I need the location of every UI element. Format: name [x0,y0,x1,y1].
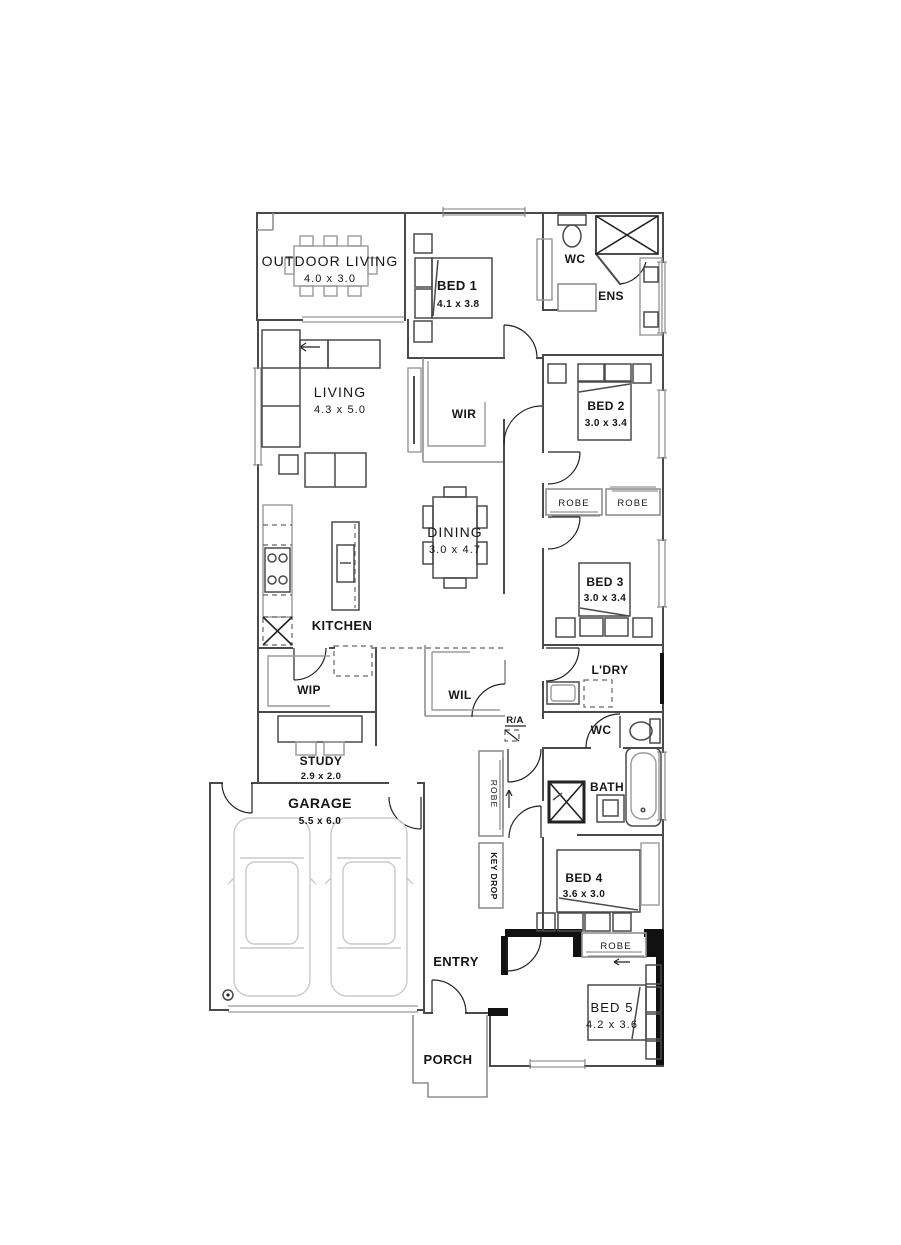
dims-bed2: 3.0 x 3.4 [585,418,628,429]
garage-rear-door [222,783,252,813]
dims-bed5: 4.2 x 3.6 [586,1019,638,1031]
wil-door [472,684,505,717]
bed4-wardrobe [641,843,659,905]
bedside-table [537,913,555,931]
return-air-symbol [505,726,526,741]
dims-bed1: 4.1 x 3.8 [437,299,480,310]
furniture-wir [428,361,485,446]
sofa-chaise [328,340,380,368]
label-bed4: BED 4 [565,871,602,885]
bedside-table [633,618,652,637]
label-bed3-robe: ROBE [617,498,648,509]
fixtures-wc [630,719,660,743]
laundry-door [546,648,579,681]
pillow [605,618,628,636]
basin [603,800,618,816]
bath-vanity [597,795,624,822]
label-wc: WC [591,723,612,737]
label-return-air: R/A [506,715,524,726]
label-bed5-robe: ROBE [600,941,631,952]
label-study: STUDY [300,754,343,768]
label-ens-wc: WC [565,252,586,266]
fixtures-laundry [547,680,612,707]
bed1-wardrobe [537,239,552,300]
kitchen-bench [263,505,292,617]
bedside-table [556,618,575,637]
toilet-bowl [563,225,581,247]
dims-living: 4.3 x 5.0 [314,404,366,416]
side-table [279,455,298,474]
bedside-table [613,913,631,931]
wip-shelves [268,656,330,706]
fridge-space [334,646,372,676]
bed3-door [548,517,580,549]
floor-plan-canvas: OUTDOOR LIVING 4.0 x 3.0 BED 1 4.1 x 3.8… [0,0,901,1245]
label-garage: GARAGE [288,795,352,811]
label-bed3: BED 3 [586,575,623,589]
wip-door [294,648,326,680]
ens-cabinet [558,284,596,311]
basin [644,267,658,282]
fixtures-ensuite [558,215,662,335]
label-wil: WIL [448,688,471,702]
label-dining: DINING [427,524,483,540]
label-bath: BATH [590,780,624,794]
hall-corridor-door [508,749,541,782]
dims-bed3: 3.0 x 3.4 [584,593,627,604]
bedside-table [414,234,432,253]
solid-walls [488,929,664,1065]
study-desk [278,716,362,742]
pillow [578,364,604,381]
label-entry: ENTRY [433,954,479,969]
dims-study: 2.9 x 2.0 [301,771,342,782]
pillow [415,289,432,318]
label-kitchen: KITCHEN [312,618,373,633]
car [228,818,316,996]
car [325,818,413,996]
dims-dining: 3.0 x 4.7 [429,544,481,556]
room-labels: OUTDOOR LIVING 4.0 x 3.0 BED 1 4.1 x 3.8… [262,252,649,1067]
floor-plan-drawing: OUTDOOR LIVING 4.0 x 3.0 BED 1 4.1 x 3.8… [0,0,901,1245]
toilet-bowl [630,722,652,740]
label-outdoor-living: OUTDOOR LIVING [262,253,399,269]
label-bed5: BED 5 [590,1000,633,1015]
bedroom-hall-door [504,406,542,444]
pillow [605,364,631,381]
wir-robes [428,361,485,446]
bed3-mattress [579,563,630,616]
furniture-wip [268,656,330,706]
pillow [585,913,610,931]
bedside-table [633,364,651,383]
label-bed2: BED 2 [587,399,624,413]
furniture-bed1 [414,234,552,342]
dims-bed4: 3.6 x 3.0 [563,889,606,900]
bath-door [509,806,541,838]
pillow [580,618,603,636]
garage-entry-door [389,797,421,829]
laundry-external-door [660,653,664,704]
bedside-table [414,321,432,342]
dims-outdoor-living: 4.0 x 3.0 [304,273,356,285]
label-porch: PORCH [424,1052,473,1067]
ens-door [620,262,646,284]
sofa [262,330,300,447]
pillow [415,258,432,287]
bed5-door [507,937,541,971]
basin [644,312,658,327]
direction-arrow-icon [506,790,512,808]
bathtub-inner [631,753,656,819]
label-hall-robe: ROBE [489,780,499,809]
bed2-door [548,452,580,484]
label-wir: WIR [452,407,477,421]
bed1-door [504,325,537,357]
doors [222,262,646,1013]
pillow [558,913,583,931]
label-wip: WIP [297,683,321,697]
dims-garage: 5.5 x 6.0 [299,816,342,827]
toilet-cistern [558,215,586,225]
label-key-drop: KEY DROP [489,852,499,899]
label-bed1: BED 1 [437,278,477,293]
label-ensuite: ENS [598,289,624,303]
furniture-garage [223,818,413,1000]
bedside-table [548,364,566,383]
washer-space [584,680,612,707]
furniture-study [278,716,362,755]
furniture-bed4 [537,843,659,931]
label-bed2-robe: ROBE [558,498,589,509]
label-laundry: L'DRY [591,663,628,677]
front-door [432,980,466,1013]
label-living: LIVING [314,384,367,400]
